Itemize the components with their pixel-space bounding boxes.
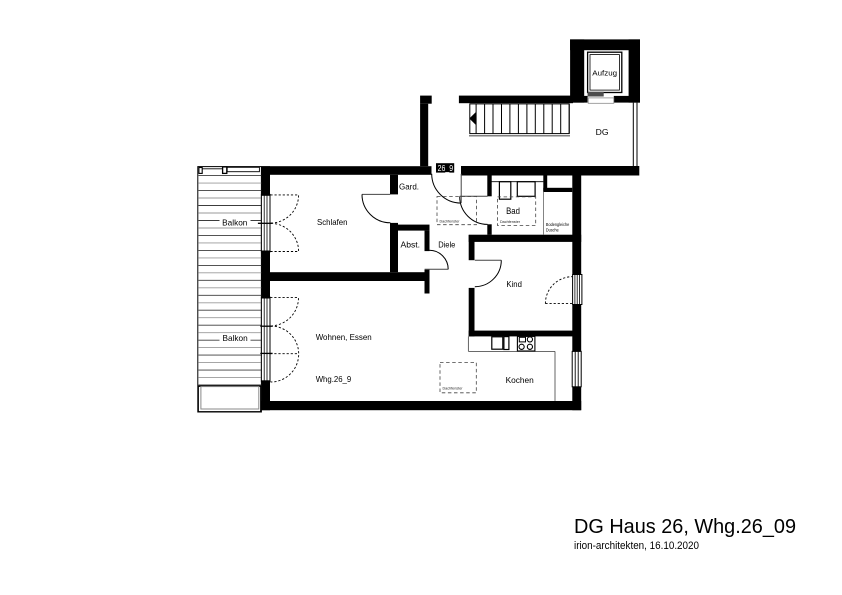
svg-text:irion-architekten, 16.10.2020: irion-architekten, 16.10.2020: [574, 540, 699, 552]
svg-text:Diele: Diele: [438, 239, 455, 249]
svg-text:Abst.: Abst.: [401, 241, 421, 250]
svg-text:Balkon: Balkon: [223, 334, 249, 343]
svg-text:DG Haus 26, Whg.26_09: DG Haus 26, Whg.26_09: [574, 515, 796, 538]
svg-text:26_9: 26_9: [438, 164, 454, 173]
svg-text:Aufzug: Aufzug: [592, 71, 617, 78]
svg-text:Kochen: Kochen: [506, 375, 535, 385]
svg-text:Dachfenster: Dachfenster: [440, 218, 461, 223]
svg-text:DG: DG: [596, 128, 609, 137]
svg-text:Bodengleiche: Bodengleiche: [546, 222, 570, 227]
svg-text:Kind: Kind: [506, 279, 522, 289]
svg-text:Dachfenster: Dachfenster: [443, 385, 464, 390]
svg-text:Wohnen, Essen: Wohnen, Essen: [316, 332, 372, 342]
svg-text:Dachfenster: Dachfenster: [500, 219, 521, 224]
svg-text:Balkon: Balkon: [222, 218, 248, 227]
svg-text:Bad: Bad: [506, 206, 520, 216]
svg-text:Whg.26_9: Whg.26_9: [316, 374, 352, 384]
svg-text:Schlafen: Schlafen: [317, 217, 348, 227]
svg-text:Dusche: Dusche: [546, 228, 559, 233]
svg-text:Gard.: Gard.: [399, 183, 419, 192]
